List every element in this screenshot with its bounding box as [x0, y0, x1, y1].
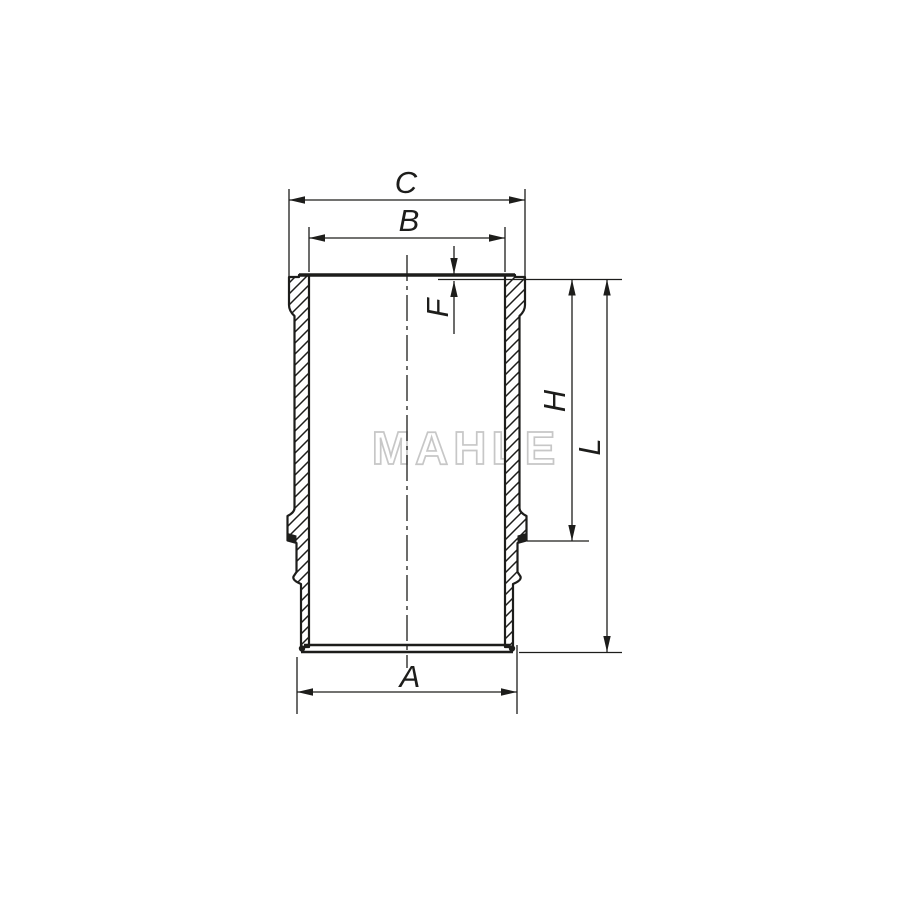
watermark: MAHLE [372, 422, 561, 474]
left-wall-section [288, 275, 310, 647]
dimension-h: H [527, 280, 589, 542]
dim-l-label: L [572, 438, 607, 455]
watermark-text: MAHLE [372, 422, 561, 474]
dim-a-label: A [398, 659, 421, 694]
cylinder-liner-technical-drawing: MAHLE C B F [0, 0, 900, 900]
bottom-right-foot [509, 645, 515, 651]
drawing-canvas: MAHLE C B F [0, 0, 900, 900]
dim-f-label: F [420, 296, 455, 317]
dim-h-label: H [537, 389, 572, 412]
dim-c-label: C [395, 165, 418, 200]
dim-b-label: B [399, 203, 420, 238]
bottom-left-foot [299, 645, 305, 651]
